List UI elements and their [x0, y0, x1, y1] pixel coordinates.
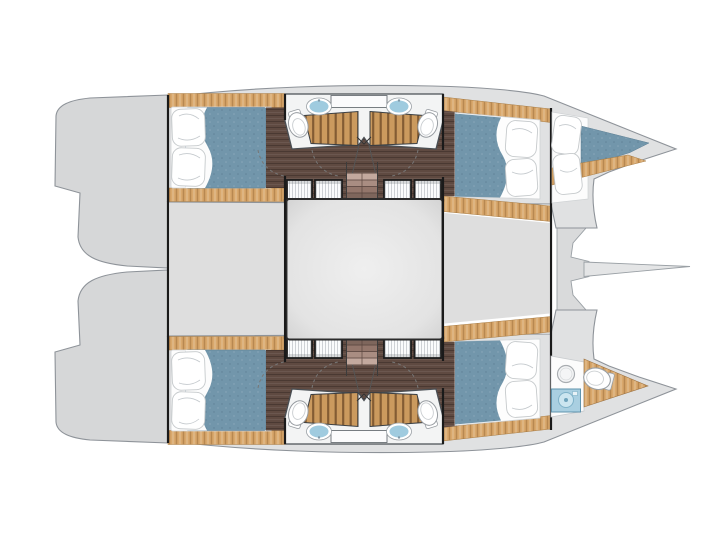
bowsprit [584, 262, 690, 277]
saloon-floor [287, 199, 443, 340]
sink-bow [552, 389, 581, 412]
forward-platform-floor [445, 213, 550, 324]
pillow [550, 114, 582, 155]
catamaran-deck-plan [0, 0, 720, 540]
pillow [552, 153, 583, 196]
aft-platform-floor [170, 201, 284, 337]
